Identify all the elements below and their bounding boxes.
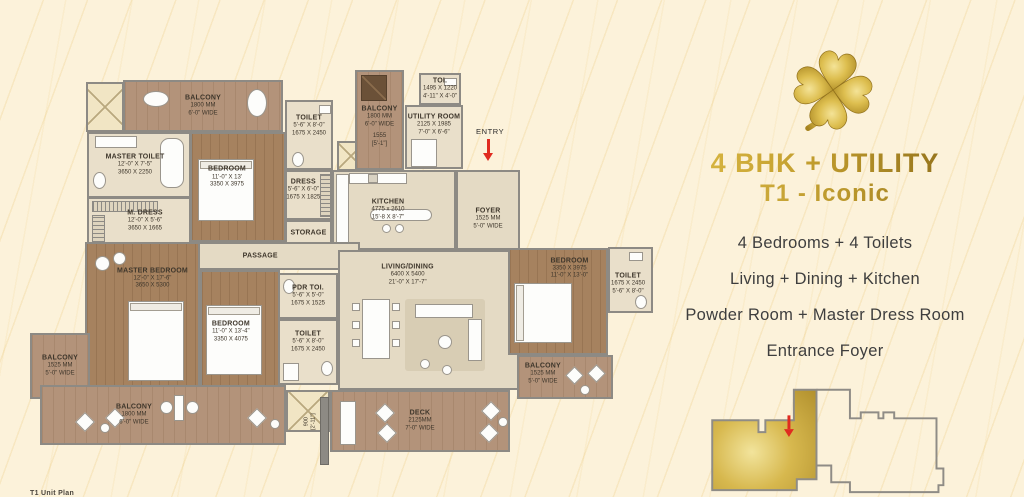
entry-arrow (487, 139, 490, 154)
room-master-dress: M. DRESS 12'-0" X 5'-6" 3650 X 1665 (87, 197, 191, 245)
furniture-wc (93, 172, 106, 189)
dimension-900: 900 [2'-11"] (303, 402, 316, 442)
room-bedroom-top: BEDROOM 11'-0" X 13' 3350 X 3975 (190, 132, 286, 242)
furniture-table (498, 417, 508, 427)
furniture-chair (95, 256, 110, 271)
furniture-chair (392, 321, 400, 329)
entry-label: ENTRY (476, 127, 504, 136)
feature-item: 4 Bedrooms + 4 Toilets (660, 234, 990, 253)
furniture-coffee-table (438, 335, 452, 349)
furniture-table (270, 419, 280, 429)
room-balcony-top2: BALCONY 1800 MM 6'-0" WIDE 1555 [5'-1"] (355, 70, 404, 170)
furniture-chair (479, 423, 499, 443)
furniture-chair (377, 423, 397, 443)
furniture-counter (349, 173, 407, 184)
room-master-toilet: MASTER TOILET 12'-0" X 7'-5" 3650 X 2250 (87, 132, 191, 198)
feature-list: 4 Bedrooms + 4 Toilets Living + Dining +… (660, 234, 990, 378)
furniture-chair (392, 303, 400, 311)
room-pdr-toi: PDR TOI. 5'-6" X 5'-0" 1675 X 1525 (278, 273, 338, 319)
room-toi: TOI. 1495 X 1220 4'-11" X 4'-0" (419, 73, 461, 105)
furniture-bed (128, 301, 184, 381)
furniture-bed (411, 139, 437, 167)
room-toilet-top: TOILET 5'-6" X 8'-0" 1675 X 2450 (285, 100, 333, 170)
furniture-chair (186, 401, 199, 414)
furniture-pillow (208, 307, 260, 315)
furniture-table (100, 423, 110, 433)
room-dress: DRESS 5'-6" X 6'-0" 1675 X 1825 (285, 170, 332, 220)
furniture-pillow (516, 285, 524, 341)
furniture-lounge (143, 91, 169, 107)
room-master-bedroom: MASTER BEDROOM 12'-0" X 17'-6" 3650 X 53… (85, 242, 200, 390)
room-utility: UTILITY ROOM 2125 X 1985 7'-0" X 6'-6" (405, 105, 463, 169)
room-foyer: FOYER 1525 MM 5'-0" WIDE (456, 170, 520, 250)
room-balcony-bottom: BALCONY 1800 MM 6'-0" WIDE (40, 385, 286, 445)
furniture-pouf (420, 359, 430, 369)
cutoff-text: T1 Unit Plan (30, 490, 74, 497)
page: BALCONY 1800 MM 6'-0" WIDE MASTER TOILET… (0, 0, 1024, 497)
furniture-table (580, 385, 590, 395)
furniture-chair (481, 401, 501, 421)
furniture-wc (635, 295, 647, 309)
wall-segment (320, 397, 329, 465)
keyplan-building-outline (816, 390, 943, 492)
furniture-pouf (442, 365, 452, 375)
furniture-chair (247, 408, 267, 428)
furniture-counter (336, 174, 349, 248)
room-toilet-r: TOILET 1675 X 2450 5'-6" X 8'-0" (608, 247, 653, 313)
room-bedroom-bl: BEDROOM 11'-0" X 13'-4" 3350 X 4075 (200, 270, 280, 390)
furniture-wardrobe (92, 215, 105, 243)
furniture-chair (75, 412, 95, 432)
furniture-chair (352, 303, 360, 311)
clover-logo-icon (772, 42, 890, 146)
feature-item: Powder Room + Master Dress Room (660, 306, 990, 325)
furniture-lounge (247, 89, 267, 117)
furniture-pillow (130, 303, 182, 311)
feature-item: Living + Dining + Kitchen (660, 270, 990, 289)
room-passage: PASSAGE (193, 242, 360, 270)
furniture-chair (352, 339, 360, 347)
furniture-chair (352, 321, 360, 329)
furniture-planter (361, 75, 387, 101)
keyplan (698, 377, 994, 497)
feature-item: Entrance Foyer (660, 342, 990, 361)
furniture-chair (160, 401, 173, 414)
furniture-chair (113, 252, 126, 265)
furniture-chair (392, 339, 400, 347)
furniture-vanity (95, 136, 137, 148)
furniture-table (174, 395, 184, 421)
room-label: BALCONY (185, 94, 221, 103)
floorplan: BALCONY 1800 MM 6'-0" WIDE MASTER TOILET… (28, 57, 668, 467)
entry-arrow-head (483, 153, 493, 161)
furniture-hob (368, 174, 378, 183)
room-toilet-bl: TOILET 5'-6" X 8'-0" 1675 X 2450 (278, 319, 338, 385)
furniture-wc (321, 361, 333, 376)
furniture-sink (629, 252, 643, 261)
furniture-sofa (415, 304, 473, 318)
furniture-sofa (468, 319, 482, 361)
furniture-stool (395, 224, 404, 233)
furniture-chair (375, 403, 395, 423)
furniture-wardrobe (320, 174, 331, 217)
furniture-chair (587, 364, 605, 382)
furniture-wc (292, 152, 304, 167)
furniture-sofa (340, 401, 356, 445)
room-deck: DECK 2125MM 7'-0" WIDE (330, 390, 510, 452)
furniture-chair (565, 366, 583, 384)
furniture-dining-table (362, 299, 390, 359)
room-living-dining: LIVING/DINING 6400 X 5400 21'-0" X 17'-7… (338, 250, 520, 390)
furniture-stool (382, 224, 391, 233)
unit-title: 4 BHK + UTILITY (668, 148, 982, 179)
keyplan-highlighted-unit (712, 390, 816, 490)
room-bedroom-r: BEDROOM 3350 X 3975 11'-0" X 13'-0" (508, 248, 608, 355)
shaft (86, 82, 124, 132)
unit-subtitle: T1 - Iconic (668, 180, 982, 208)
furniture-shower (283, 363, 299, 381)
room-balcony-top: BALCONY 1800 MM 6'-0" WIDE (123, 80, 283, 132)
room-kitchen: KITCHEN 4775 x 2610 15'-8 X 8'-7" (332, 170, 456, 250)
room-balcony-r: BALCONY 1525 MM 5'-0" WIDE (517, 355, 613, 399)
